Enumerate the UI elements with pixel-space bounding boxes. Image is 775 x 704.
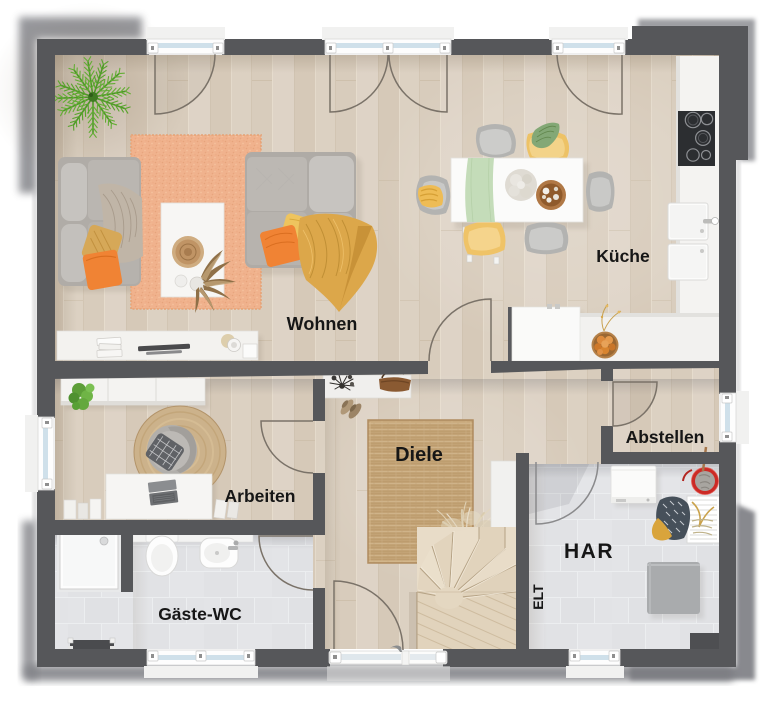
svg-text:Arbeiten: Arbeiten <box>225 486 296 506</box>
svg-text:HAR: HAR <box>564 540 614 563</box>
svg-text:ELT: ELT <box>530 584 546 610</box>
svg-text:Abstellen: Abstellen <box>626 427 705 447</box>
svg-text:Wohnen: Wohnen <box>287 314 358 334</box>
svg-text:Küche: Küche <box>596 246 650 266</box>
svg-text:Diele: Diele <box>395 444 443 466</box>
svg-text:Gäste-WC: Gäste-WC <box>158 604 242 624</box>
